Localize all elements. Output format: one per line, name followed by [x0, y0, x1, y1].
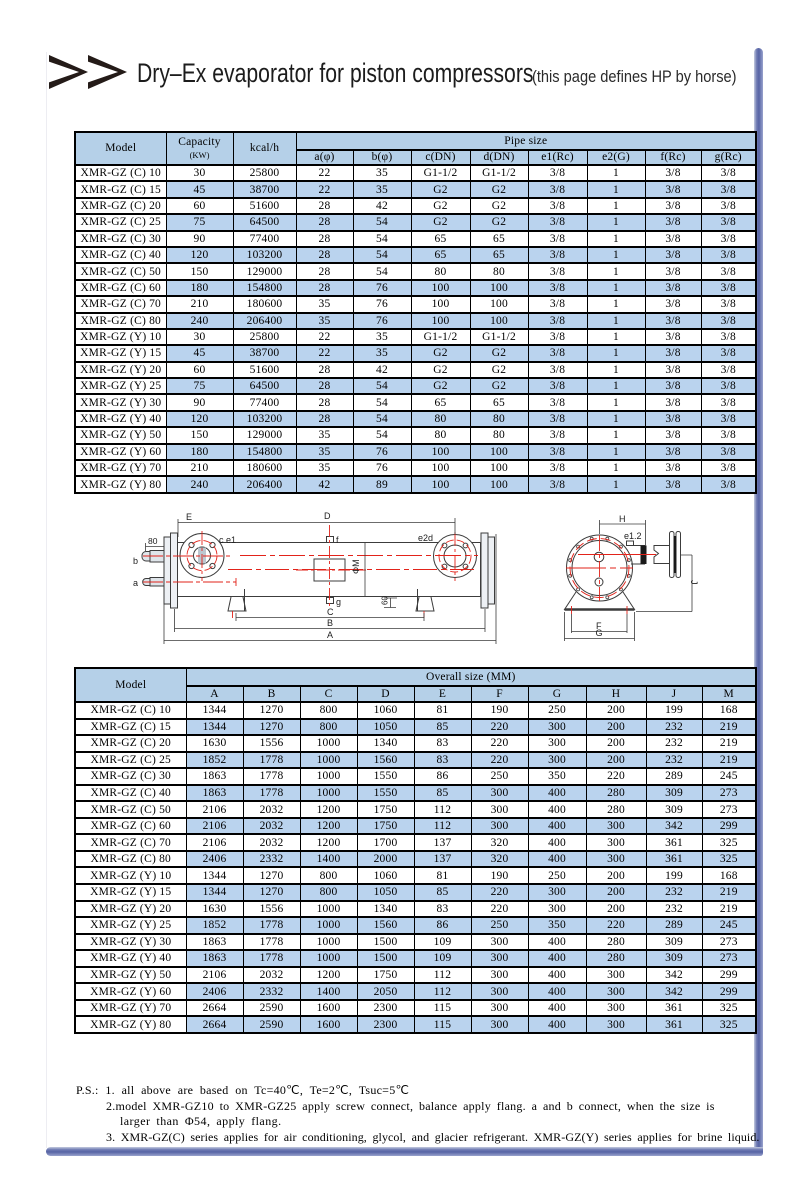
svg-text:e1.2: e1.2 [624, 531, 642, 541]
svg-text:e2d: e2d [418, 533, 433, 543]
svg-text:ΦM: ΦM [351, 559, 361, 574]
svg-text:D: D [324, 511, 331, 521]
svg-text:b: b [133, 556, 138, 566]
svg-text:C: C [327, 607, 334, 617]
svg-text:60: 60 [381, 596, 390, 605]
svg-text:E: E [186, 512, 192, 522]
svg-text:G: G [596, 628, 603, 638]
svg-text:a: a [133, 578, 138, 588]
svg-text:J: J [689, 580, 699, 585]
svg-text:g: g [336, 597, 341, 607]
svg-text:80: 80 [148, 536, 158, 546]
svg-text:H: H [619, 514, 626, 524]
svg-text:B: B [327, 618, 333, 628]
svg-text:A: A [327, 630, 333, 640]
svg-text:c e1: c e1 [219, 535, 236, 545]
